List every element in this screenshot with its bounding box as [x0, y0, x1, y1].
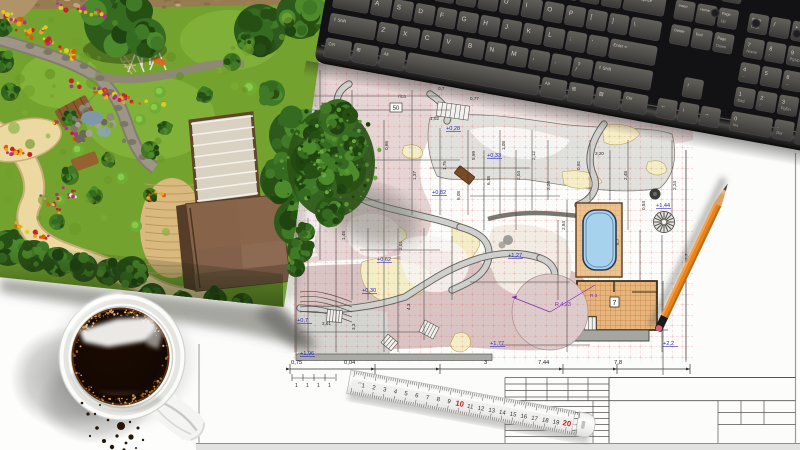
svg-text:+0,30: +0,30	[362, 288, 376, 294]
svg-text:+1,77: +1,77	[490, 341, 504, 347]
svg-text:rica: rica	[398, 94, 406, 100]
svg-text:0,75: 0,75	[291, 360, 302, 366]
svg-text:6,18: 6,18	[486, 176, 491, 185]
svg-text:7: 7	[613, 300, 617, 307]
svg-text:3,20: 3,20	[595, 151, 604, 156]
svg-text:2,04: 2,04	[516, 171, 521, 180]
svg-text:+1,27: +1,27	[508, 253, 522, 259]
svg-text:1,37: 1,37	[412, 171, 417, 180]
svg-text:+0,82: +0,82	[432, 190, 446, 196]
svg-text:R 4,23: R 4,23	[555, 302, 571, 308]
svg-text:4,3: 4,3	[406, 303, 411, 310]
svg-text:1,08: 1,08	[501, 141, 506, 150]
svg-text:2,84: 2,84	[561, 221, 566, 230]
svg-text:8,7: 8,7	[615, 238, 620, 245]
svg-text:7,44: 7,44	[538, 360, 550, 366]
svg-text:R 3: R 3	[590, 293, 598, 298]
svg-text:2,26: 2,26	[546, 181, 551, 190]
svg-text:6,08: 6,08	[456, 191, 461, 200]
svg-text:20: 20	[562, 418, 572, 428]
svg-text:2,24: 2,24	[672, 181, 677, 190]
svg-text:0,84: 0,84	[641, 201, 646, 210]
svg-text:10: 10	[455, 398, 465, 408]
svg-text:5,99: 5,99	[471, 151, 476, 160]
svg-text:1: 1	[328, 383, 331, 389]
svg-text:+0,62: +0,62	[377, 257, 391, 263]
svg-text:2,48: 2,48	[623, 171, 628, 180]
svg-text:7,8: 7,8	[614, 360, 622, 366]
svg-text:0,66: 0,66	[384, 141, 389, 150]
svg-text:+1,44: +1,44	[656, 203, 670, 209]
svg-text:+2,2: +2,2	[663, 341, 674, 347]
svg-text:50: 50	[393, 106, 400, 112]
svg-text:3,3: 3,3	[351, 323, 356, 330]
svg-text:1: 1	[306, 383, 309, 389]
svg-text:←: ←	[660, 103, 667, 110]
svg-text:1,75: 1,75	[442, 161, 447, 170]
svg-text:1,02: 1,02	[430, 116, 439, 121]
svg-text:→: →	[703, 111, 710, 118]
svg-text:1: 1	[317, 383, 320, 389]
svg-text:3,61: 3,61	[322, 321, 331, 326]
svg-text:Ins: Ins	[733, 122, 739, 128]
svg-text:+1,96: +1,96	[300, 351, 314, 357]
svg-text:2,12: 2,12	[531, 151, 536, 160]
svg-text:0,04: 0,04	[344, 360, 356, 366]
svg-text:3: 3	[484, 360, 487, 366]
svg-text:+0,7: +0,7	[297, 318, 308, 324]
svg-text:+0,33: +0,33	[487, 153, 501, 159]
svg-text:+0,28: +0,28	[446, 126, 460, 132]
svg-text:0,92: 0,92	[576, 161, 581, 170]
svg-text:1: 1	[295, 383, 298, 389]
